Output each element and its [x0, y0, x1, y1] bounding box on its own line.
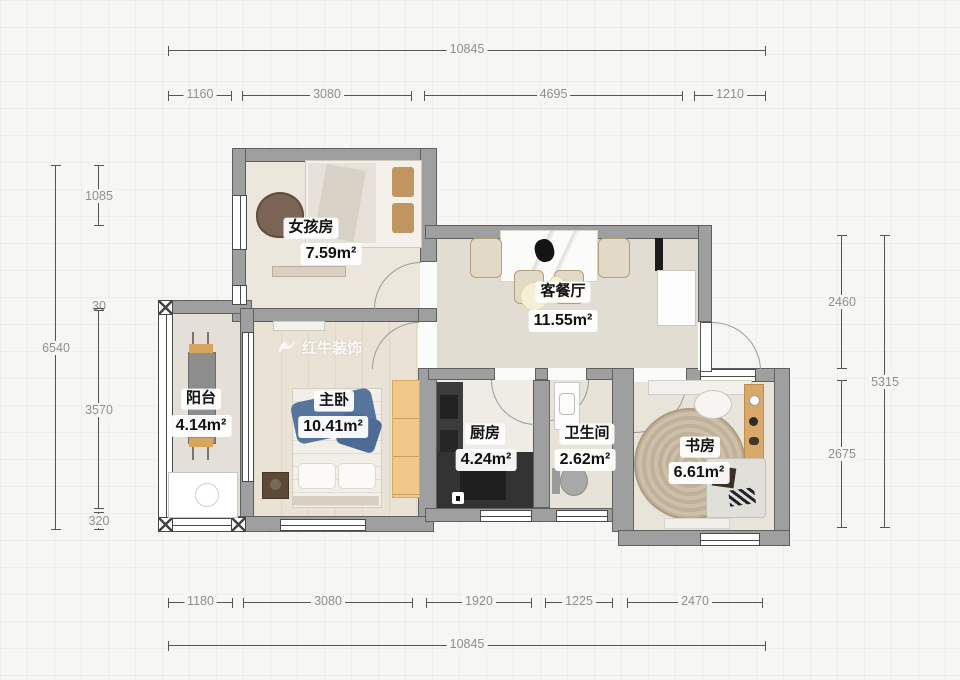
desk-chair: [694, 390, 732, 419]
lock-dot: [456, 496, 460, 501]
curtain: [273, 321, 325, 331]
pillow: [298, 463, 336, 489]
room-area-master: 10.41m²: [298, 416, 368, 438]
brand-watermark: 红牛装饰: [276, 336, 362, 358]
drying-rack-end: [189, 344, 213, 353]
wall: [418, 368, 437, 518]
window: [232, 195, 247, 250]
dim-label: 2675: [825, 447, 859, 461]
room-name-girls: 女孩房: [283, 218, 338, 239]
door-opening-girls: [420, 262, 437, 308]
room-name-master: 主卧: [314, 391, 354, 412]
dim-left-seg-2: 30: [98, 302, 99, 309]
door-arc-entrance: [712, 322, 761, 371]
shelf: [744, 384, 764, 460]
dim-label: 3080: [311, 594, 345, 608]
sliding-door-balcony: [242, 332, 254, 482]
room-name-living: 客餐厅: [535, 282, 590, 303]
figurine: [749, 417, 758, 426]
dim-label: 10845: [447, 42, 488, 56]
dim-label: 1160: [184, 87, 217, 101]
fridge: [657, 270, 696, 326]
wall: [698, 225, 712, 322]
dim-left-seg-3: 3570: [98, 310, 99, 509]
dim-left-seg-1: 1085: [98, 165, 99, 226]
dim-label: 320: [86, 514, 113, 528]
room-area-living: 11.55m²: [529, 310, 598, 332]
wall: [232, 308, 434, 322]
figurine: [749, 437, 759, 445]
dining-chair: [598, 238, 630, 278]
pillow: [392, 203, 414, 233]
dim-bottom-seg-4: 1225: [545, 602, 613, 603]
room-name-bath: 卫生间: [559, 424, 614, 445]
washing-machine: [168, 472, 238, 518]
dim-right-total: 5315: [884, 235, 885, 528]
door-opening-kitchen: [495, 368, 535, 380]
dim-label: 5315: [868, 375, 902, 389]
wardrobe: [392, 380, 420, 498]
room-name-study: 书房: [680, 437, 720, 458]
wall: [418, 308, 437, 322]
dim-bottom-seg-5: 2470: [627, 602, 763, 603]
dim-label: 1085: [82, 189, 116, 203]
pillow: [338, 463, 376, 489]
window-corner-mark: [158, 517, 173, 532]
dim-top-seg-2: 3080: [242, 95, 412, 96]
dim-label: 2470: [678, 594, 712, 608]
plant: [270, 479, 281, 490]
brand-watermark-text: 红牛装饰: [302, 337, 362, 358]
room-name-kitchen: 厨房: [465, 424, 505, 445]
wall: [420, 148, 437, 262]
room-area-girls: 7.59m²: [301, 243, 362, 265]
room-name-balcony: 阳台: [181, 389, 221, 410]
dim-label: 1225: [562, 594, 596, 608]
dim-label: 1210: [713, 87, 747, 101]
window: [700, 533, 760, 546]
dresser: [272, 266, 346, 277]
window: [556, 510, 608, 522]
dim-label: 4695: [537, 87, 571, 101]
dim-label: 6540: [39, 341, 73, 355]
floor-mat: [664, 518, 730, 529]
entrance-door-panel: [700, 322, 712, 372]
dim-label: 3570: [82, 403, 116, 417]
smart-lock-icon: [452, 492, 464, 504]
room-area-bath: 2.62m²: [555, 449, 616, 471]
wall: [774, 368, 790, 546]
window-corner-mark: [231, 517, 246, 532]
cushion: [728, 487, 756, 506]
dim-bottom-seg-1: 1180: [168, 602, 233, 603]
window: [280, 519, 366, 531]
room-area-study: 6.61m²: [669, 462, 730, 484]
pillow: [392, 167, 414, 197]
dim-top-seg-4: 1210: [694, 95, 766, 96]
drying-rack-end: [189, 438, 213, 447]
room-area-balcony: 4.14m²: [171, 415, 232, 437]
washer-drum: [195, 483, 219, 507]
cooktop: [440, 395, 458, 419]
room-area-kitchen: 4.24m²: [456, 449, 517, 471]
basin: [559, 393, 575, 415]
dim-top-total: 10845: [168, 50, 766, 51]
dim-top-seg-1: 1160: [168, 95, 232, 96]
door-opening-bathroom: [548, 368, 586, 380]
tall-cabinet: [655, 238, 663, 271]
door-opening-master: [418, 322, 437, 368]
toilet: [552, 468, 560, 494]
dim-left-total: 6540: [55, 165, 56, 530]
dim-label: 2460: [825, 295, 859, 309]
dim-label: 1180: [184, 594, 217, 608]
floorplan-page: 10845 1160 3080 4695 1210 1180 3080 1920…: [0, 0, 960, 680]
dim-right-seg-1: 2460: [841, 235, 842, 369]
wall: [428, 368, 495, 380]
dining-chair: [470, 238, 502, 278]
window-corner-mark: [158, 300, 173, 315]
dim-top-seg-3: 4695: [424, 95, 683, 96]
figurine: [749, 395, 760, 406]
dim-left-seg-4: 320: [98, 512, 99, 530]
dim-right-seg-2: 2675: [841, 380, 842, 528]
nightstand: [262, 472, 289, 499]
wall: [535, 368, 548, 380]
dim-label: 10845: [447, 637, 488, 651]
window: [232, 285, 247, 305]
dim-label: 1920: [462, 594, 496, 608]
dim-bottom-total: 10845: [168, 645, 766, 646]
dim-label: 3080: [310, 87, 344, 101]
dim-bottom-seg-3: 1920: [426, 602, 532, 603]
brand-logo-icon: [276, 336, 298, 358]
headboard: [293, 496, 379, 505]
dim-bottom-seg-2: 3080: [243, 602, 413, 603]
window: [480, 510, 532, 522]
